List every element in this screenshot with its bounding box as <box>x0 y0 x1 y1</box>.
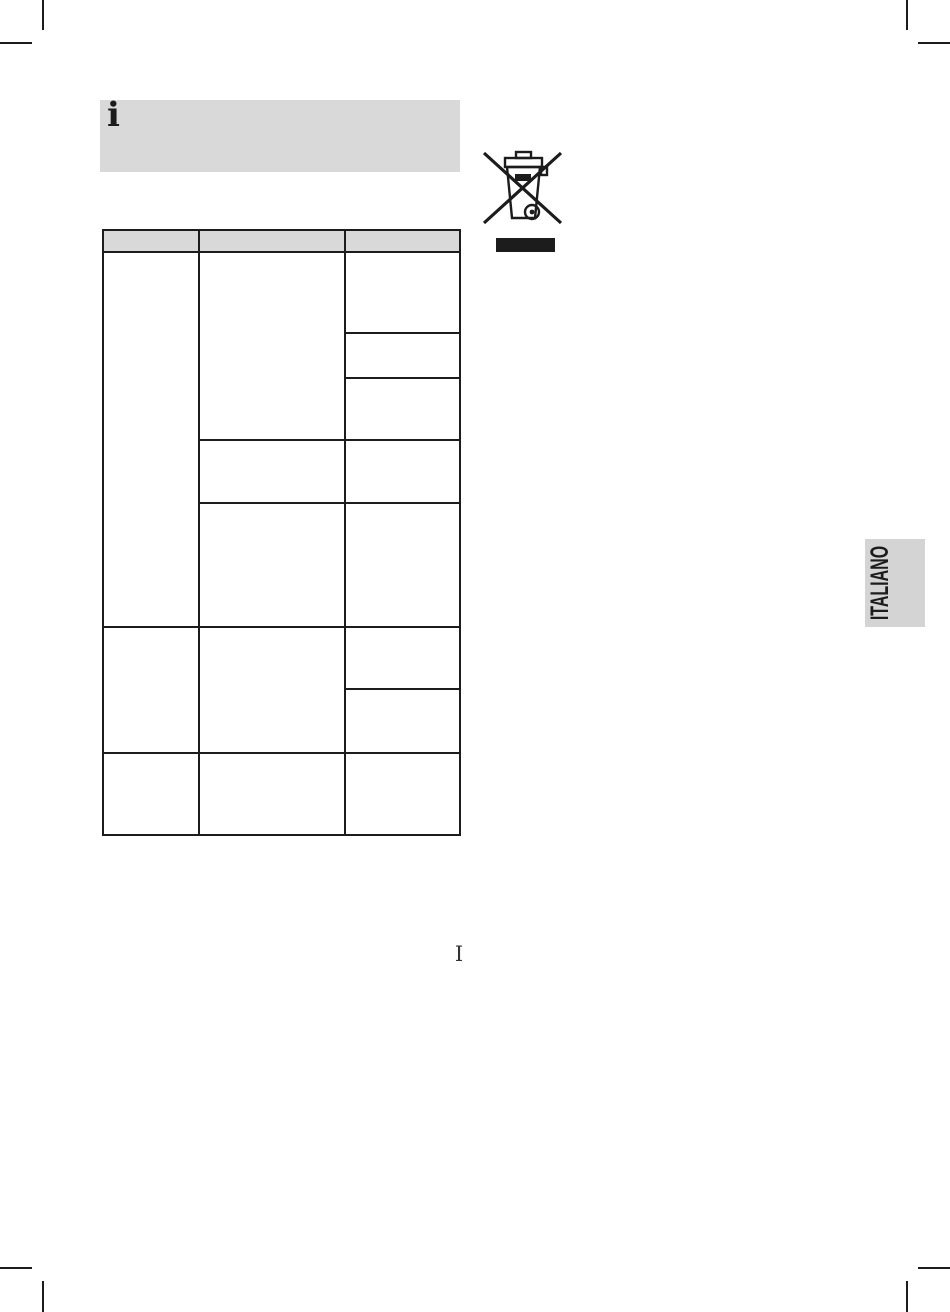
weee-black-bar <box>496 238 555 252</box>
table-cell <box>345 440 460 503</box>
table-cell <box>345 503 460 627</box>
table-cell <box>199 252 345 440</box>
weee-crossed-out-wheelie-bin-icon <box>480 146 570 258</box>
table-cell <box>103 627 199 753</box>
crop-mark-top-left-horizontal <box>0 42 32 44</box>
table-cell <box>199 440 345 503</box>
crop-mark-top-right-horizontal <box>918 42 950 44</box>
table-cell <box>103 753 199 835</box>
table-row <box>103 627 460 689</box>
table-cell <box>345 753 460 835</box>
table-cell <box>199 503 345 627</box>
info-banner: i <box>100 100 460 172</box>
table-cell <box>199 627 345 753</box>
table-header-cell <box>103 230 199 252</box>
manual-page: i <box>0 0 950 1312</box>
table-cell <box>199 753 345 835</box>
troubleshooting-table <box>102 229 461 836</box>
table-header-cell <box>345 230 460 252</box>
crop-mark-bottom-right-vertical <box>906 1281 908 1312</box>
table-cell <box>103 252 199 627</box>
crop-mark-top-left-vertical <box>42 0 44 30</box>
table-row <box>103 252 460 333</box>
crop-mark-bottom-right-horizontal <box>918 1267 950 1269</box>
table-header-cell <box>199 230 345 252</box>
table-cell <box>345 333 460 378</box>
table-cell <box>345 252 460 333</box>
language-side-tab-label: ITALIANO <box>867 541 893 624</box>
page-marker: I <box>449 942 469 966</box>
table-cell <box>345 627 460 689</box>
crop-mark-bottom-left-horizontal <box>0 1267 32 1269</box>
table-cell <box>345 378 460 440</box>
table-cell <box>345 689 460 753</box>
info-icon: i <box>107 98 120 132</box>
table-row <box>103 753 460 835</box>
weee-fill-mark <box>515 174 531 181</box>
crop-mark-top-right-vertical <box>906 0 908 30</box>
table-header-row <box>103 230 460 252</box>
crop-mark-bottom-left-vertical <box>42 1281 44 1312</box>
language-side-tab: ITALIANO <box>865 539 925 627</box>
